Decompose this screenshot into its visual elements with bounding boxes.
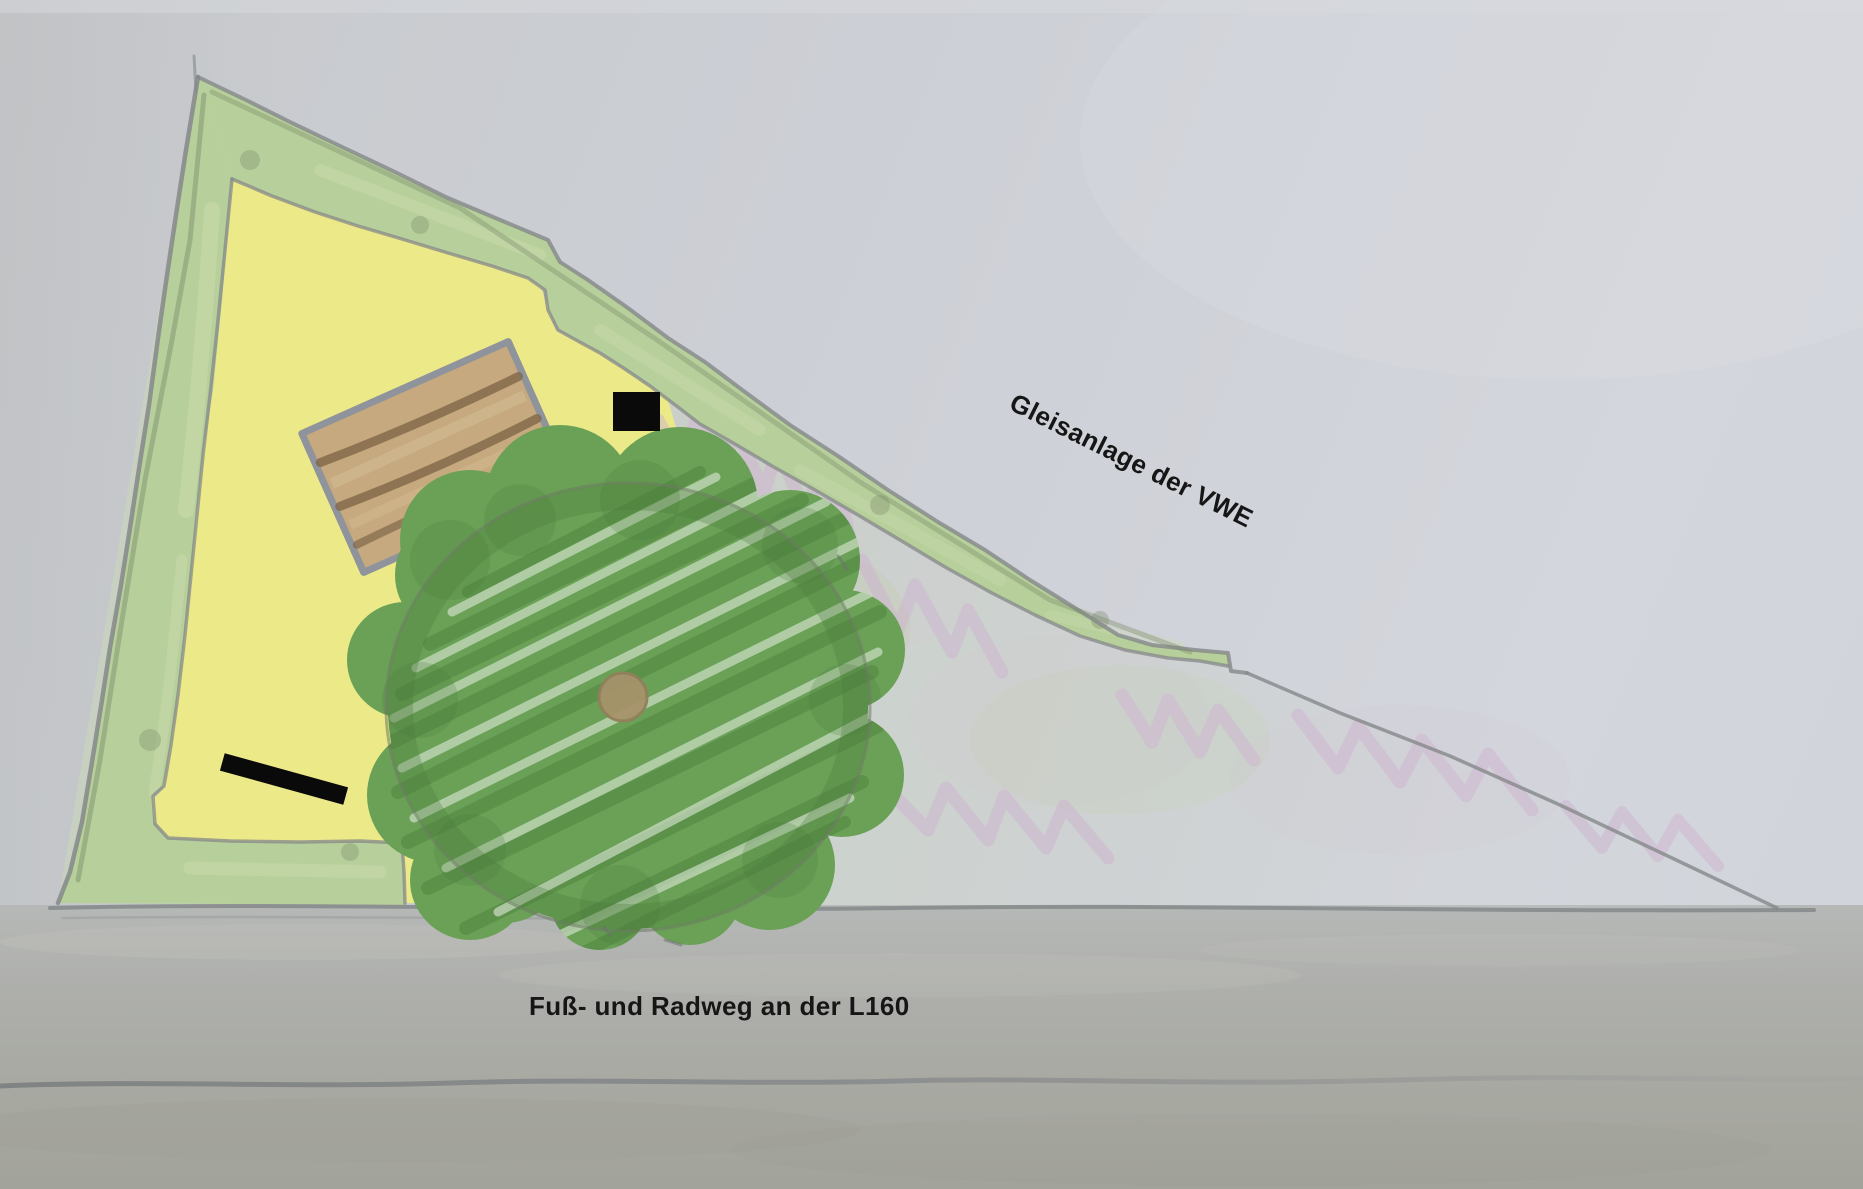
footpath-label: Fuß- und Radweg an der L160 — [529, 992, 910, 1021]
hedge-texture-dot — [411, 216, 429, 234]
hedge-texture-dot — [139, 729, 161, 751]
tree-edge-clump — [762, 507, 838, 583]
hedge-texture-dot — [341, 843, 359, 861]
paper-highlight-topright — [1080, 0, 1863, 380]
site-plan-drawing — [0, 0, 1863, 1189]
hedge-highlight — [190, 868, 380, 872]
lower-paper-sheen — [1200, 934, 1800, 966]
paper-lower-area — [0, 905, 1863, 1189]
paper-top-strip — [0, 0, 1863, 13]
tree-edge-clump — [382, 662, 458, 738]
black-square-marker — [613, 392, 660, 431]
lower-paper-shadow — [730, 1114, 1770, 1186]
green-patch — [970, 665, 1270, 815]
hedge-texture-dot — [240, 150, 260, 170]
tree-trunk — [599, 673, 647, 721]
tree-edge-clump — [600, 460, 680, 540]
pencil-apex-overshoot — [194, 56, 196, 92]
lower-paper-sheen — [0, 924, 600, 960]
tree-canopy — [347, 425, 905, 955]
site-plan-photo: Gleisanlage der VWE Fuß- und Radweg an d… — [0, 0, 1863, 1189]
